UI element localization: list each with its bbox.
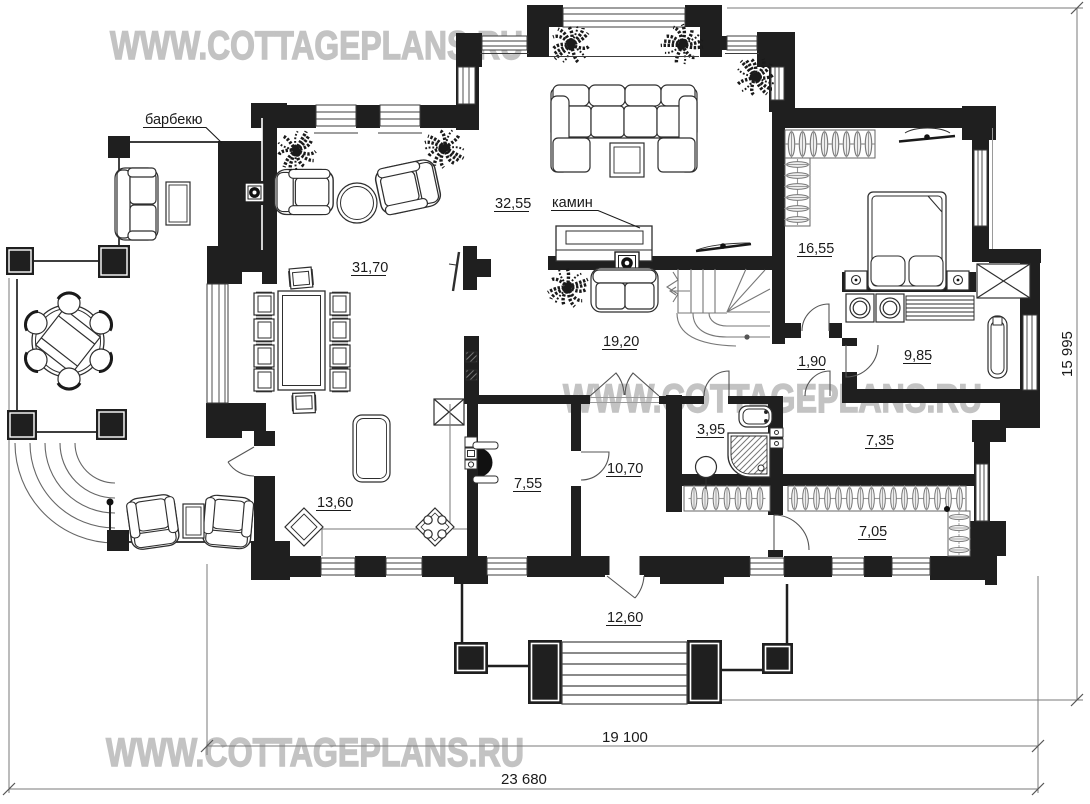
svg-text:32,55: 32,55	[495, 196, 531, 212]
svg-text:1,90: 1,90	[798, 354, 826, 370]
svg-text:19,20: 19,20	[603, 334, 639, 350]
svg-text:23 680: 23 680	[501, 771, 547, 788]
svg-text:7,55: 7,55	[514, 476, 542, 492]
svg-text:7,05: 7,05	[859, 524, 887, 540]
svg-text:WWW.COTTAGEPLANS.RU: WWW.COTTAGEPLANS.RU	[106, 731, 524, 775]
svg-text:12,60: 12,60	[607, 610, 643, 626]
svg-text:31,70: 31,70	[352, 260, 388, 276]
svg-text:19 100: 19 100	[602, 729, 648, 746]
svg-text:9,85: 9,85	[904, 348, 932, 364]
svg-text:13,60: 13,60	[317, 495, 353, 511]
svg-text:7,35: 7,35	[866, 433, 894, 449]
svg-text:10,70: 10,70	[607, 461, 643, 477]
svg-text:камин: камин	[552, 195, 593, 211]
svg-text:3,95: 3,95	[697, 422, 725, 438]
svg-text:16,55: 16,55	[798, 241, 834, 257]
svg-text:15 995: 15 995	[1059, 331, 1076, 377]
svg-text:барбекю: барбекю	[145, 112, 203, 128]
